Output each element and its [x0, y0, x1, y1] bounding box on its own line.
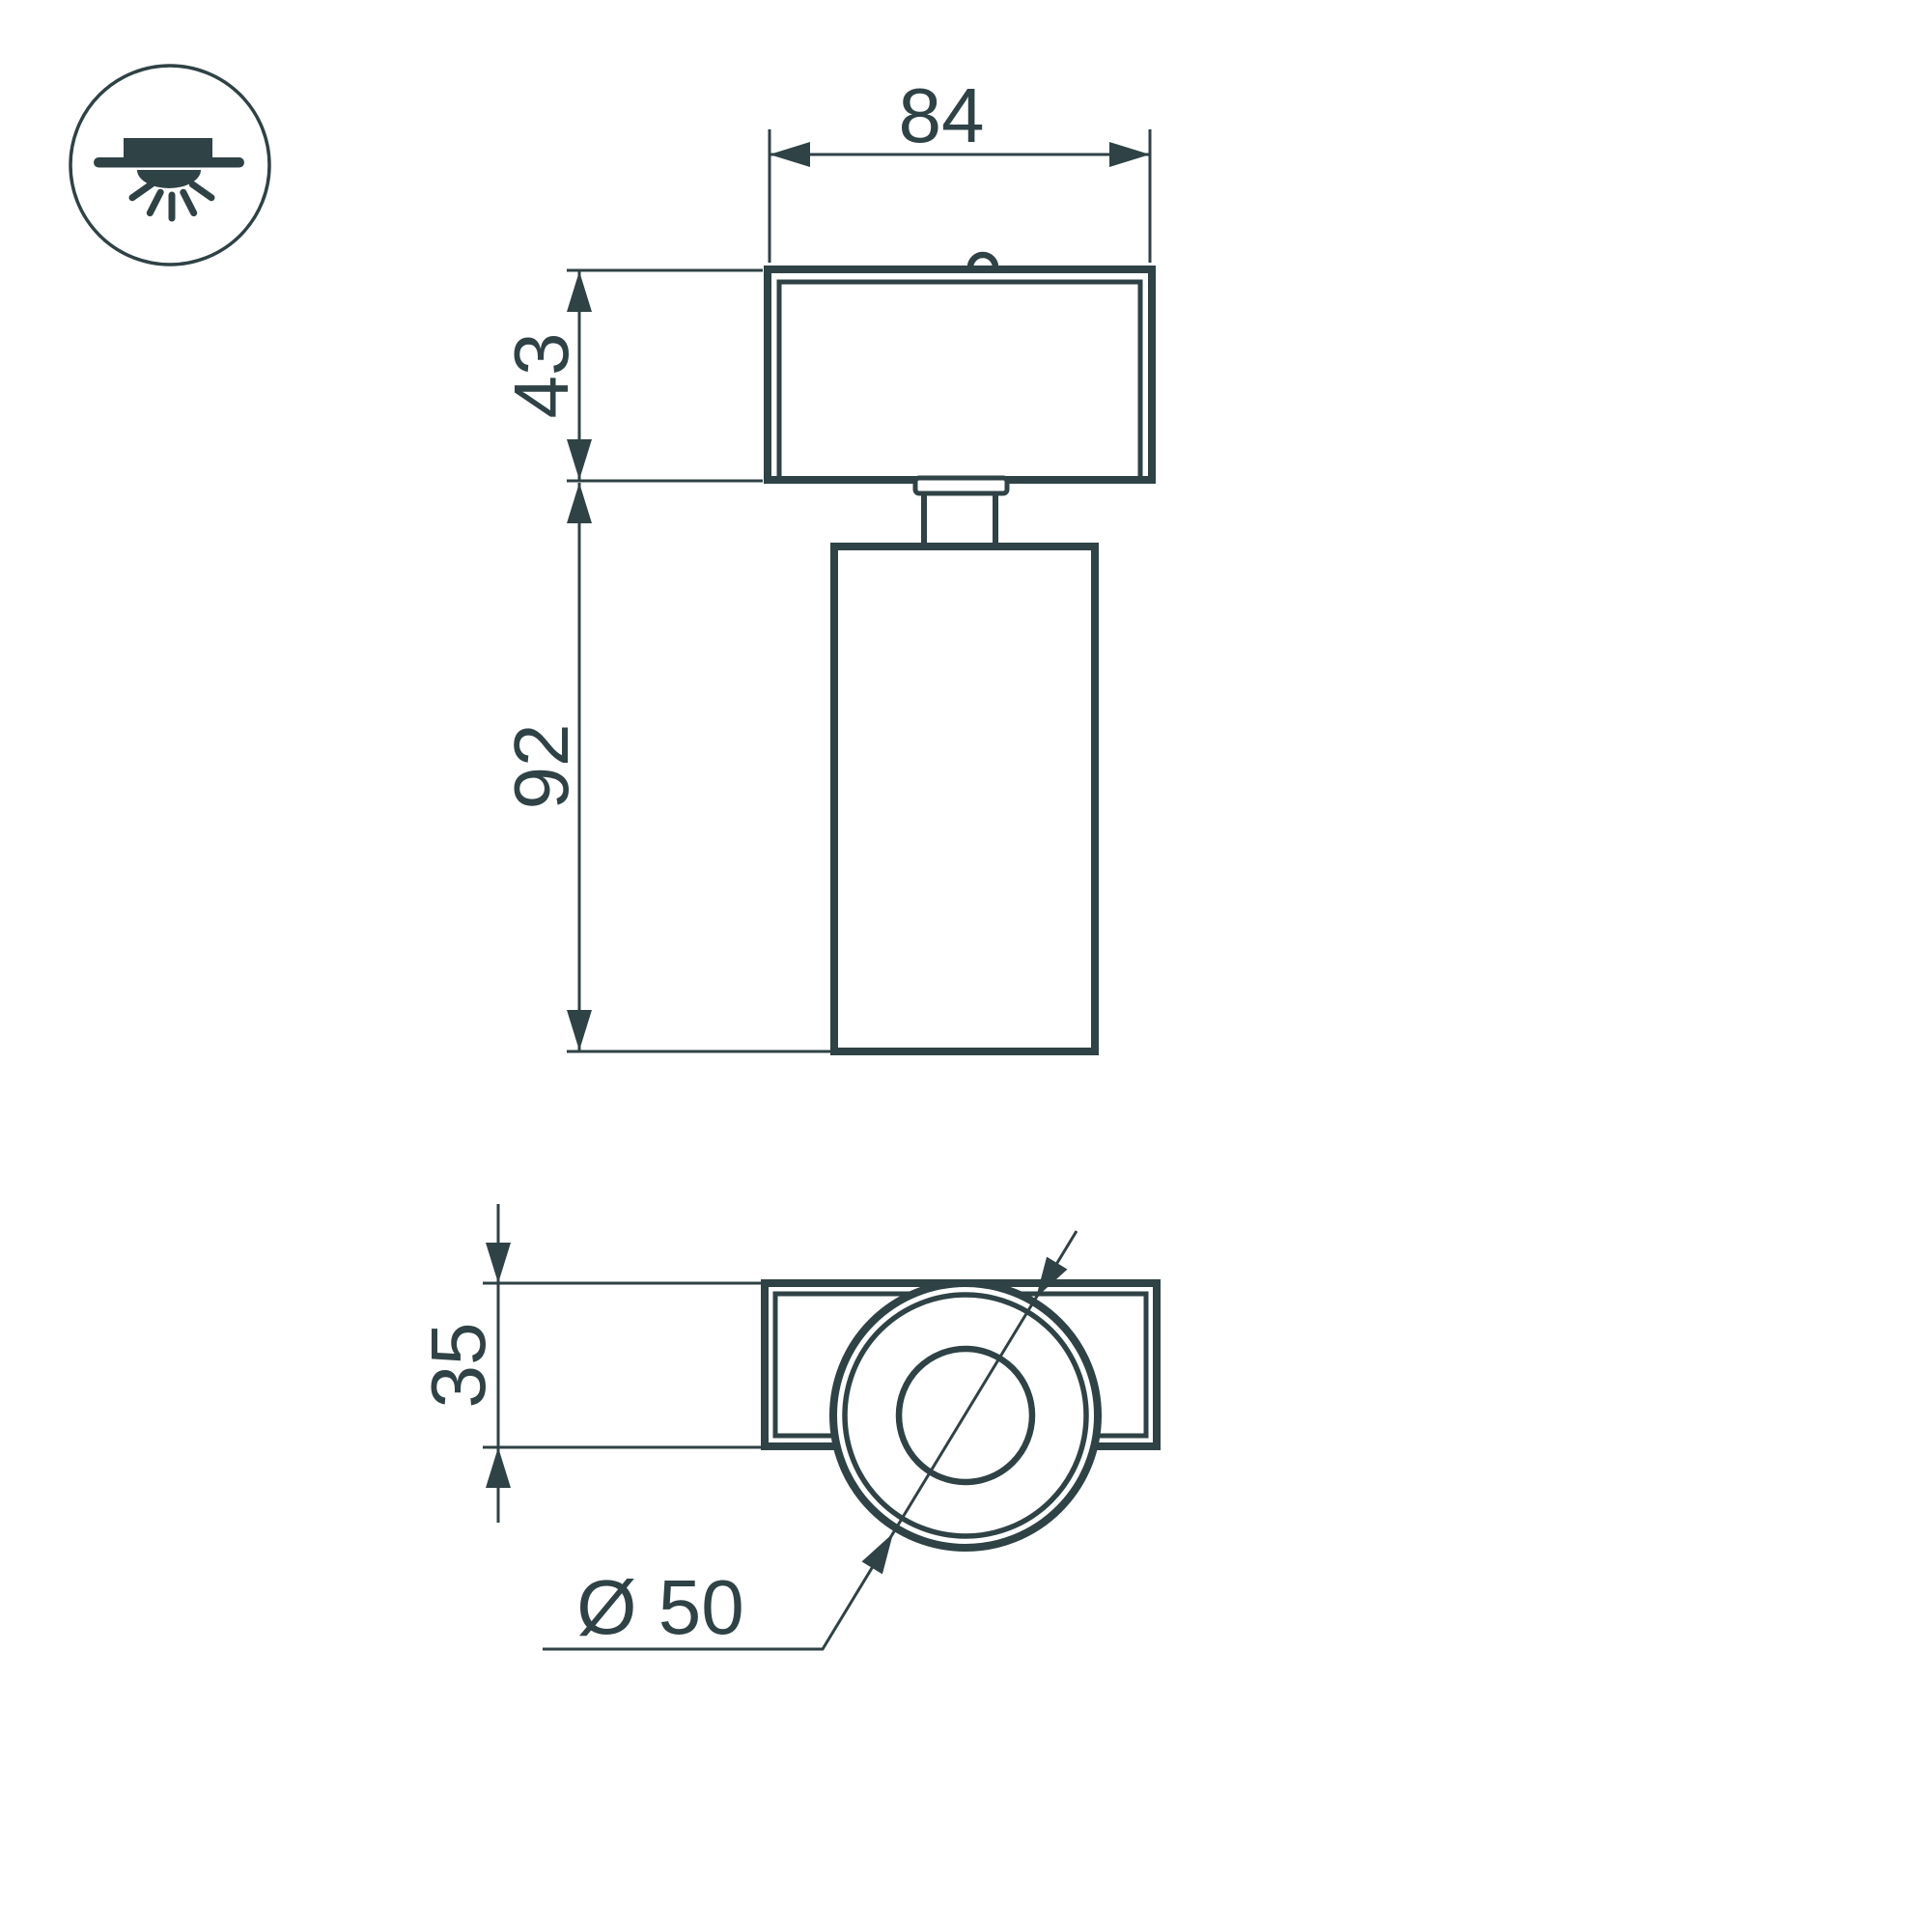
dim-width-arrow-left: [770, 142, 810, 167]
dim-depth-label: 35: [415, 1323, 501, 1409]
icon-light-rays: [132, 184, 211, 218]
mount-type-badge: [70, 66, 269, 265]
dim-diameter-label: Ø 50: [576, 1564, 743, 1650]
dim-upper-height: 43: [498, 270, 763, 481]
dim-depth-extension-lines: [483, 1283, 761, 1447]
dim-width-arrow-right: [1109, 142, 1150, 167]
dim-upper-height-arrow-bottom: [567, 439, 592, 480]
pivot-bracket: [915, 478, 1007, 493]
dim-upper-height-label: 43: [498, 333, 584, 419]
dim-body-height-arrow-top: [567, 483, 592, 523]
dim-diameter-arrow-lower: [862, 1533, 894, 1574]
track-base-outline: [768, 269, 1152, 480]
dim-upper-height-arrow-top: [567, 271, 592, 312]
dim-depth-arrow-top: [486, 1243, 511, 1283]
dim-upper-height-extension-lines: [567, 270, 763, 481]
dim-body-height: 92: [498, 483, 831, 1051]
bottom-view: [765, 1283, 1157, 1548]
pivot-neck: [924, 493, 995, 544]
icon-ceiling-bar: [94, 157, 244, 168]
dim-body-height-label: 92: [498, 724, 584, 810]
spot-body: [834, 546, 1095, 1051]
dim-width-label: 84: [899, 72, 985, 158]
dim-depth: 35: [415, 1204, 761, 1523]
luminaire-dimension-drawing: 84 43 92 35 Ø 50: [0, 0, 1932, 1932]
dim-depth-arrow-bottom: [486, 1447, 511, 1488]
front-view: [768, 255, 1152, 1051]
dim-body-height-arrow-bottom: [567, 1010, 592, 1050]
technical-drawing-canvas: 84 43 92 35 Ø 50: [0, 0, 1932, 1932]
icon-canopy-rect: [124, 138, 212, 159]
ceiling-surface-mount-light-icon: [94, 138, 244, 218]
dim-width: 84: [770, 72, 1150, 263]
